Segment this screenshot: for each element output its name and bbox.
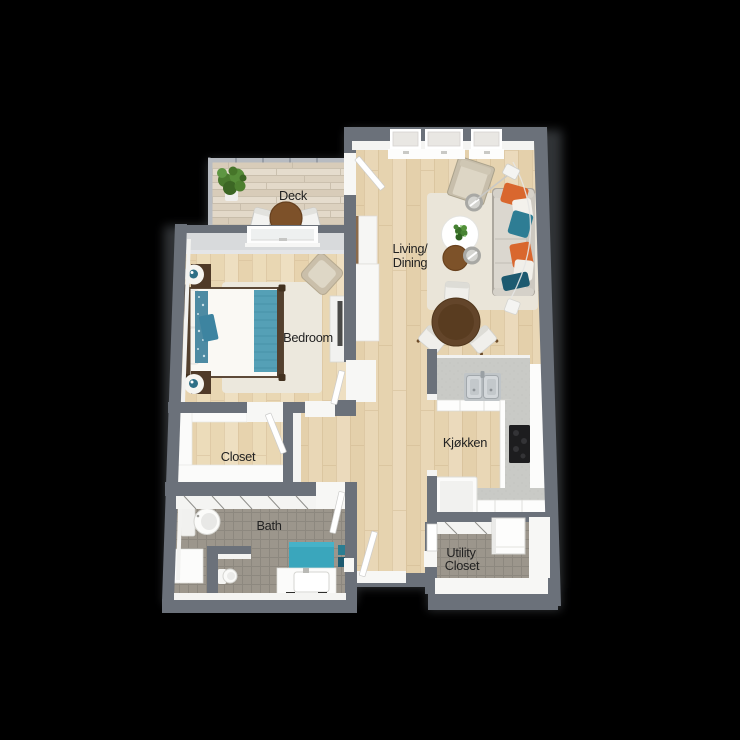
svg-text:Closet: Closet	[221, 449, 256, 464]
svg-text:Dining: Dining	[393, 255, 428, 270]
svg-text:Kjøkken: Kjøkken	[443, 435, 487, 450]
svg-text:Living/: Living/	[393, 241, 429, 256]
svg-text:Bath: Bath	[256, 518, 281, 533]
svg-text:Bedroom: Bedroom	[283, 330, 333, 345]
svg-text:Closet: Closet	[445, 558, 480, 573]
svg-text:Deck: Deck	[279, 188, 308, 203]
